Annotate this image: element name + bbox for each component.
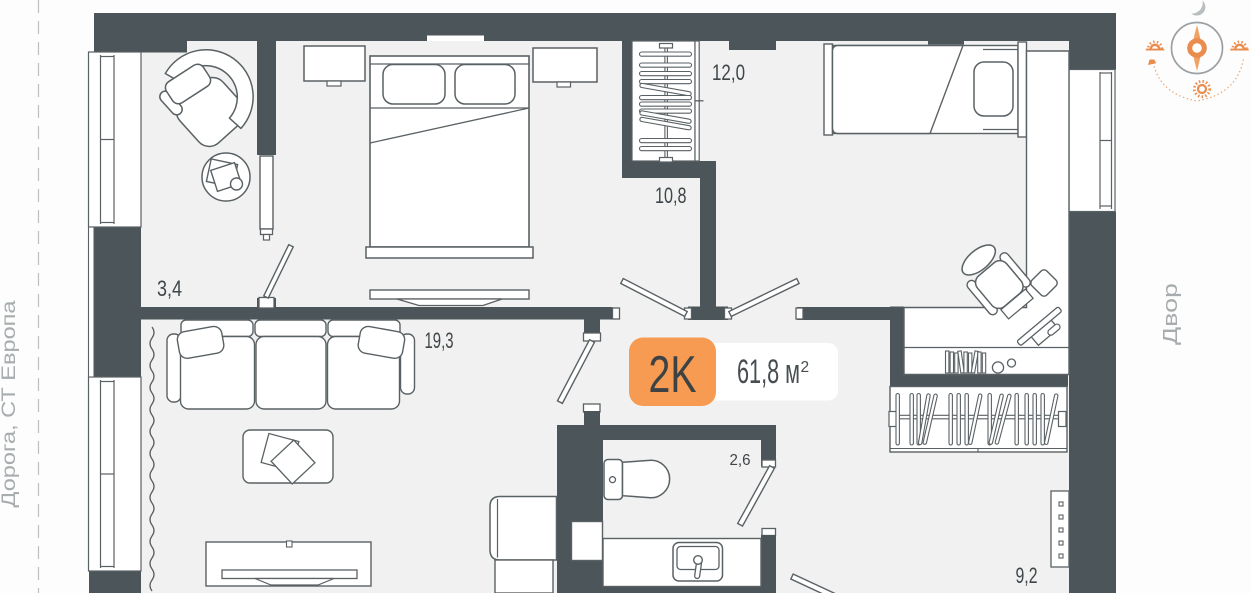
svg-text:Двор: Двор <box>1160 283 1182 345</box>
svg-text:19,3: 19,3 <box>425 328 454 353</box>
svg-text:2,6: 2,6 <box>730 452 751 469</box>
svg-text:61,8 м: 61,8 м <box>737 353 800 391</box>
svg-text:2K: 2K <box>649 346 697 404</box>
svg-text:12,0: 12,0 <box>712 60 745 85</box>
svg-text:Дорога, СТ Европа: Дорога, СТ Европа <box>0 300 20 508</box>
svg-text:2: 2 <box>801 359 810 376</box>
svg-text:3,4: 3,4 <box>157 276 182 301</box>
svg-text:9,2: 9,2 <box>1016 563 1038 588</box>
svg-text:10,8: 10,8 <box>655 183 687 208</box>
